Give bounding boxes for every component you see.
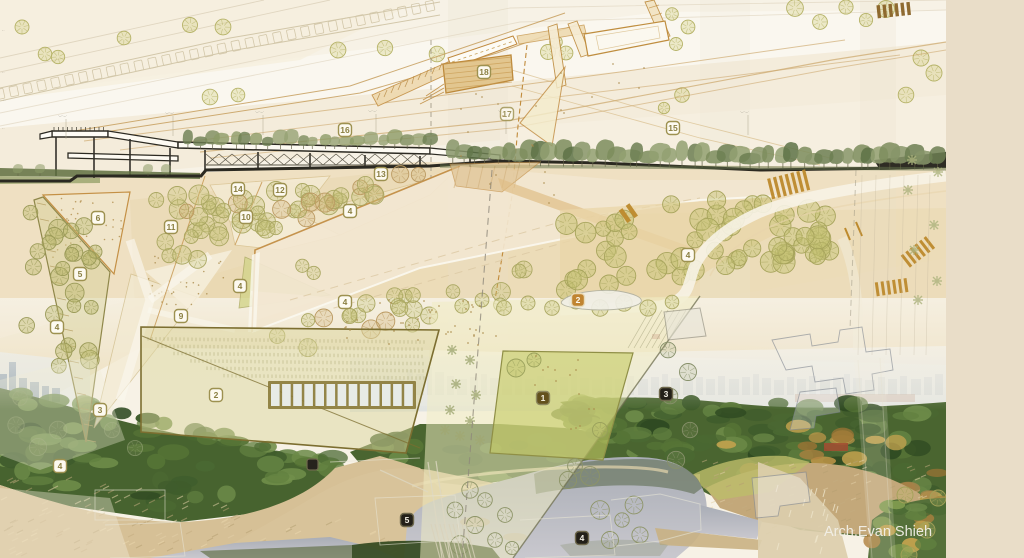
svg-text:5: 5 (78, 269, 83, 279)
svg-text:11: 11 (167, 222, 176, 232)
svg-text:15: 15 (668, 123, 678, 133)
svg-text:4: 4 (686, 250, 691, 260)
svg-text:14: 14 (233, 184, 243, 194)
svg-text:18: 18 (479, 67, 489, 77)
svg-text:2: 2 (576, 295, 581, 305)
svg-text:9: 9 (179, 311, 184, 321)
svg-text:5: 5 (405, 515, 410, 525)
svg-text:6: 6 (96, 213, 101, 223)
svg-text:1: 1 (541, 393, 546, 403)
svg-text:Arch.Evan Shieh: Arch.Evan Shieh (824, 524, 932, 540)
svg-text:·─··─·: ·─··─· (368, 109, 377, 113)
svg-text:3: 3 (664, 389, 669, 399)
svg-text:16: 16 (340, 125, 350, 135)
svg-text:4: 4 (348, 206, 353, 216)
svg-text:12: 12 (275, 185, 285, 195)
svg-text:13: 13 (376, 169, 386, 179)
svg-text:·─··─·: ·─··─· (740, 110, 749, 114)
svg-text:4: 4 (55, 322, 60, 332)
svg-text:4: 4 (238, 281, 243, 291)
svg-text:10: 10 (241, 212, 251, 222)
svg-text:·─··─·: ·─··─· (255, 110, 264, 114)
svg-text:-··: -·· (2, 126, 5, 130)
svg-text:·─··─·: ·─··─· (58, 114, 67, 118)
svg-text:-··: -·· (2, 28, 5, 32)
svg-text:4: 4 (580, 533, 585, 543)
svg-text:-··: -·· (3, 98, 6, 102)
svg-text:4: 4 (343, 297, 348, 307)
svg-text:4: 4 (58, 461, 63, 471)
svg-text:17: 17 (502, 109, 512, 119)
svg-text:·─··─·: ·─··─· (165, 111, 174, 115)
svg-text:2: 2 (214, 390, 219, 400)
svg-text:3: 3 (98, 405, 103, 415)
svg-text:-··: -·· (2, 70, 5, 74)
